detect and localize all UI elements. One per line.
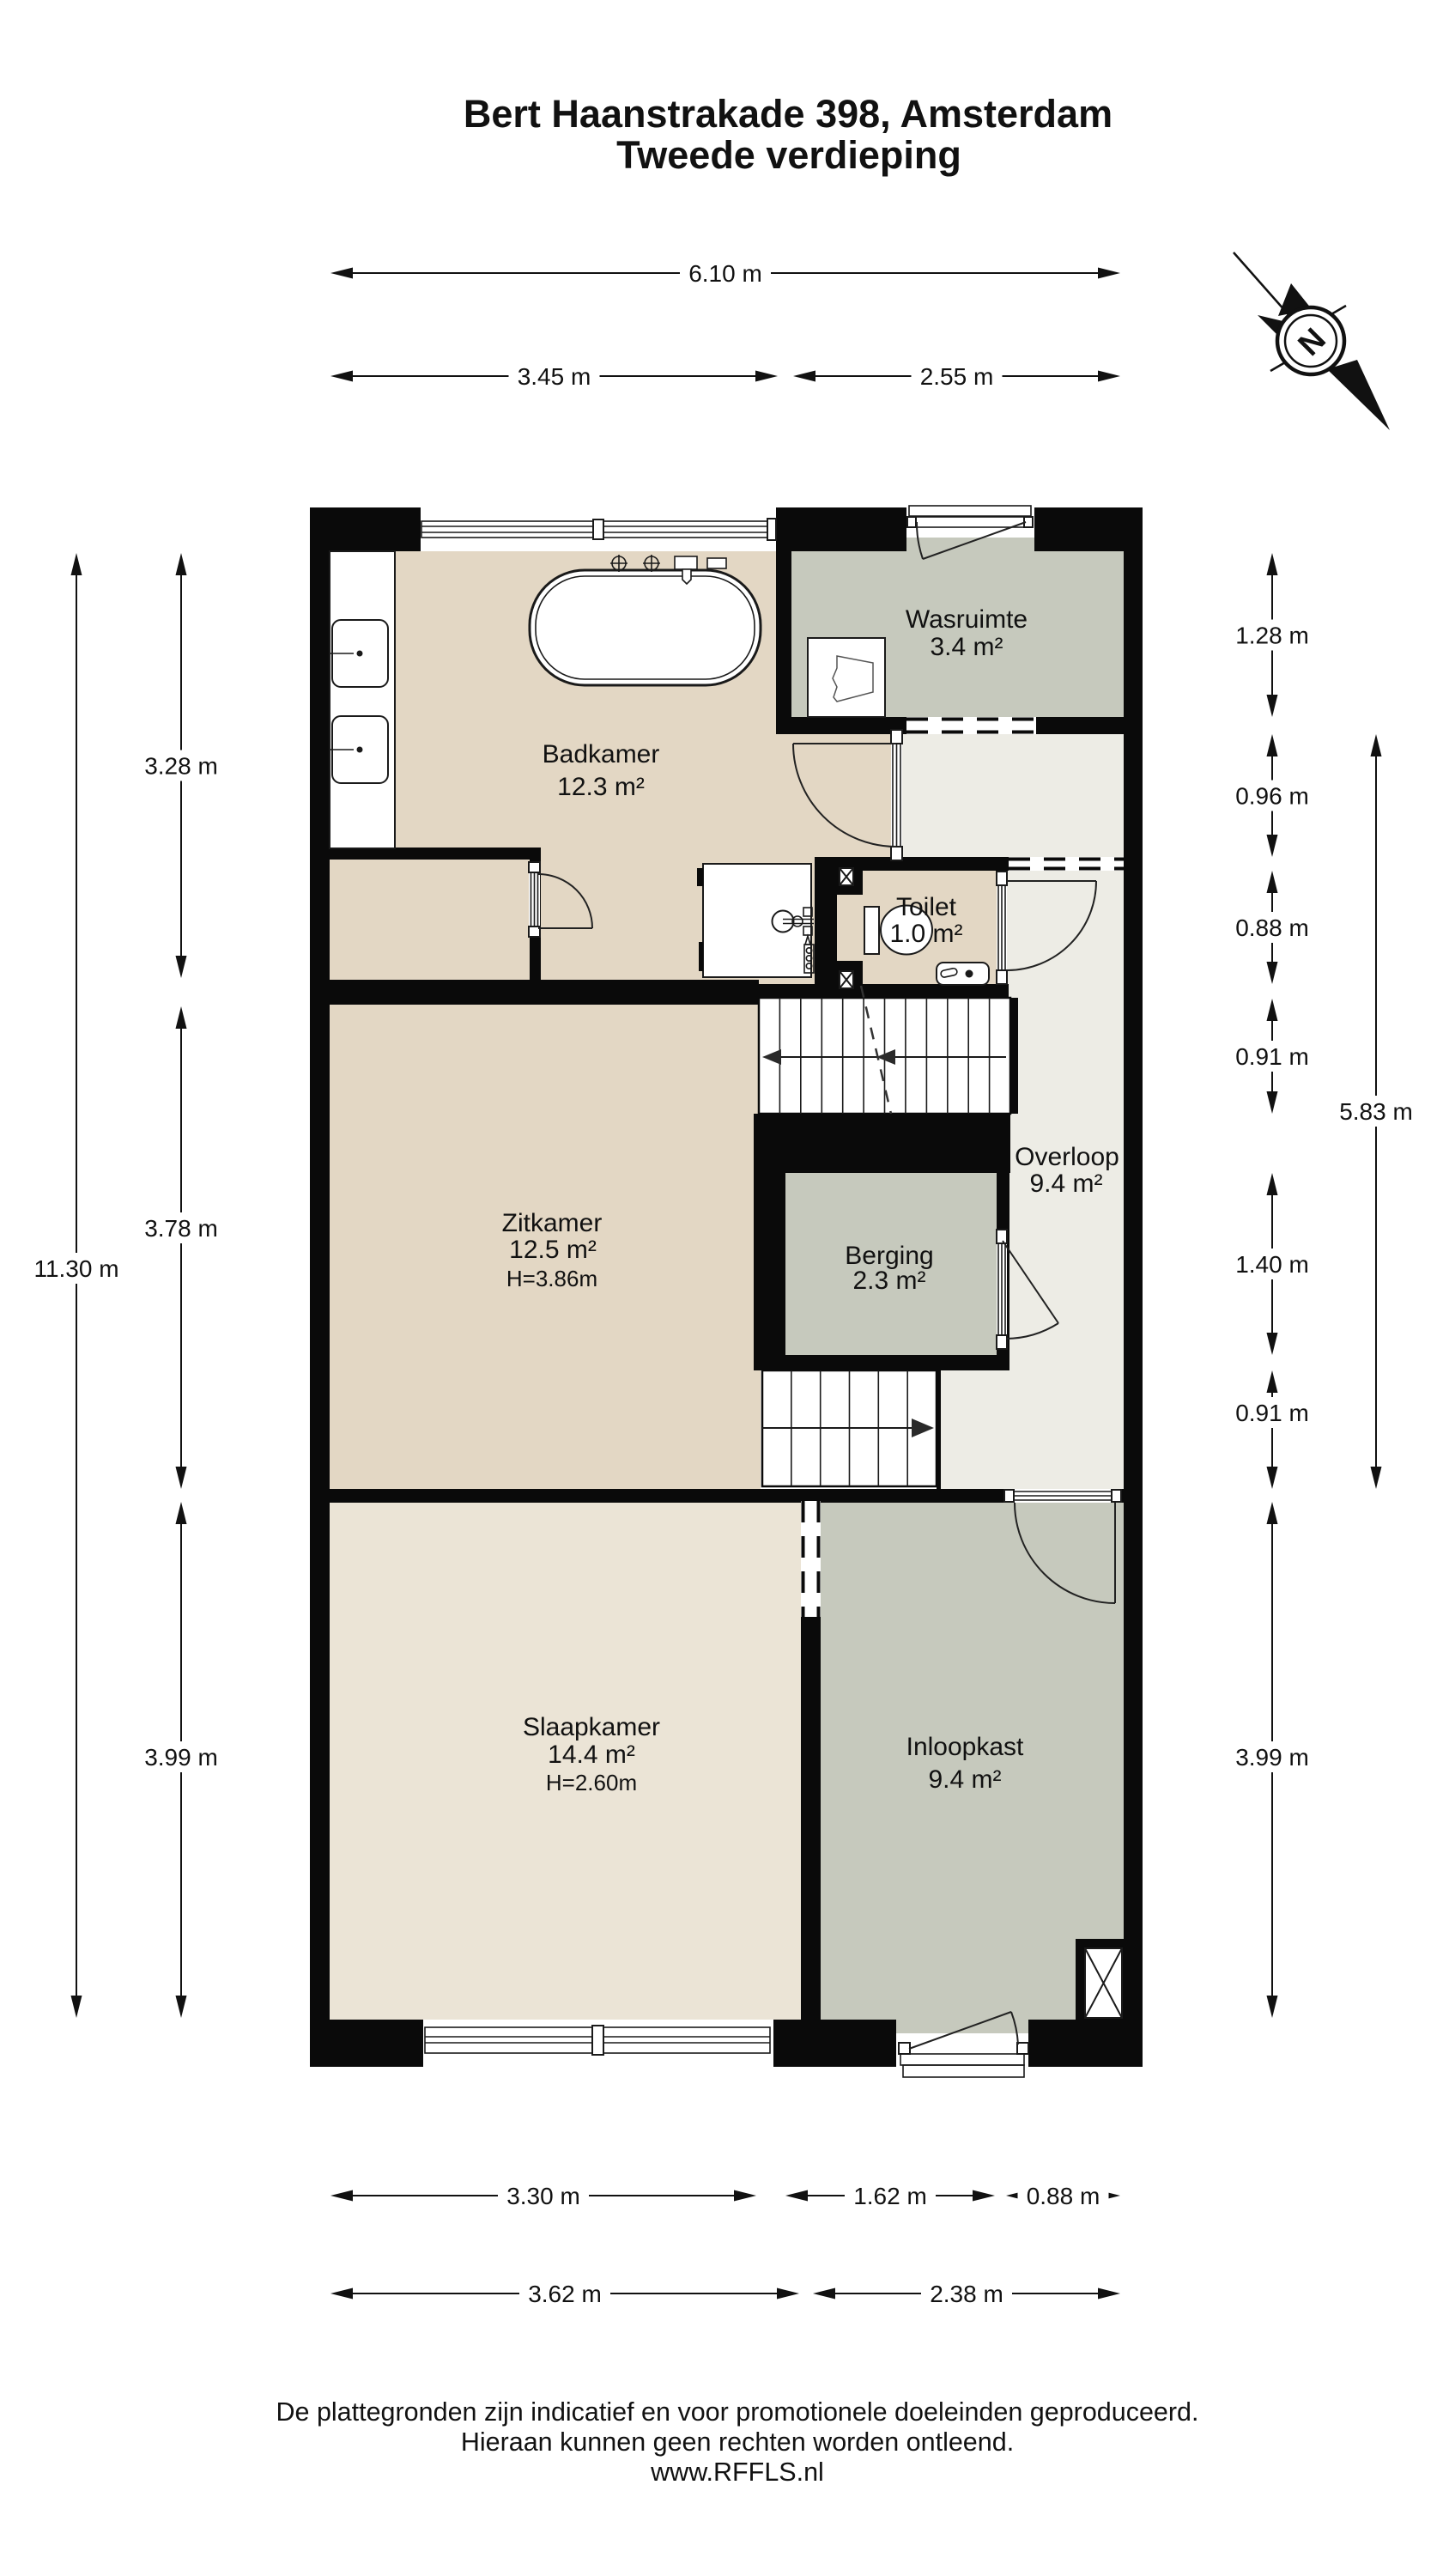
svg-text:1.28 m: 1.28 m	[1235, 623, 1309, 649]
svg-text:2.3 m²: 2.3 m²	[852, 1267, 925, 1295]
svg-text:3.45 m: 3.45 m	[518, 363, 591, 390]
svg-text:Toilet: Toilet	[896, 893, 957, 921]
svg-text:0.91 m: 0.91 m	[1235, 1400, 1309, 1426]
svg-text:2.55 m: 2.55 m	[920, 363, 994, 390]
svg-text:Zitkamer: Zitkamer	[502, 1209, 603, 1237]
svg-text:H=3.86m: H=3.86m	[506, 1266, 597, 1291]
svg-text:12.5 m²: 12.5 m²	[509, 1236, 597, 1264]
svg-text:3.28 m: 3.28 m	[144, 753, 218, 780]
svg-text:Bert Haanstrakade 398, Amsterd: Bert Haanstrakade 398, Amsterdam	[464, 92, 1113, 136]
svg-text:www.RFFLS.nl: www.RFFLS.nl	[650, 2458, 824, 2487]
svg-text:0.96 m: 0.96 m	[1235, 783, 1309, 810]
svg-text:11.30 m: 11.30 m	[33, 1255, 118, 1282]
svg-text:3.62 m: 3.62 m	[528, 2281, 602, 2307]
svg-text:14.4 m²: 14.4 m²	[548, 1741, 635, 1769]
svg-text:Inloopkast: Inloopkast	[906, 1733, 1024, 1761]
svg-text:Tweede verdieping: Tweede verdieping	[616, 133, 961, 177]
svg-text:9.4 m²: 9.4 m²	[928, 1765, 1001, 1794]
svg-text:Overloop: Overloop	[1015, 1143, 1119, 1171]
svg-text:1.62 m: 1.62 m	[853, 2183, 927, 2209]
svg-text:12.3 m²: 12.3 m²	[557, 773, 645, 801]
svg-text:1.0 m²: 1.0 m²	[889, 920, 962, 948]
svg-text:3.78 m: 3.78 m	[144, 1215, 218, 1242]
svg-text:3.4 m²: 3.4 m²	[930, 633, 1003, 661]
svg-text:De plattegronden zijn indicati: De plattegronden zijn indicatief en voor…	[276, 2397, 1198, 2427]
svg-text:Wasruimte: Wasruimte	[906, 605, 1028, 634]
svg-text:Hieraan kunnen geen rechten wo: Hieraan kunnen geen rechten worden ontle…	[461, 2427, 1014, 2457]
svg-text:2.38 m: 2.38 m	[930, 2281, 1003, 2307]
svg-text:0.88 m: 0.88 m	[1027, 2183, 1100, 2209]
svg-text:Badkamer: Badkamer	[543, 740, 660, 769]
svg-text:9.4 m²: 9.4 m²	[1029, 1170, 1102, 1198]
svg-text:H=2.60m: H=2.60m	[546, 1770, 637, 1795]
svg-text:6.10 m: 6.10 m	[688, 260, 762, 287]
svg-text:0.88 m: 0.88 m	[1235, 914, 1309, 941]
svg-text:5.83 m: 5.83 m	[1339, 1098, 1413, 1125]
svg-text:3.30 m: 3.30 m	[506, 2183, 580, 2209]
svg-text:Slaapkamer: Slaapkamer	[523, 1713, 660, 1741]
svg-text:0.91 m: 0.91 m	[1235, 1043, 1309, 1070]
svg-text:3.99 m: 3.99 m	[1235, 1744, 1309, 1771]
svg-text:3.99 m: 3.99 m	[144, 1744, 218, 1771]
svg-text:1.40 m: 1.40 m	[1235, 1251, 1309, 1278]
